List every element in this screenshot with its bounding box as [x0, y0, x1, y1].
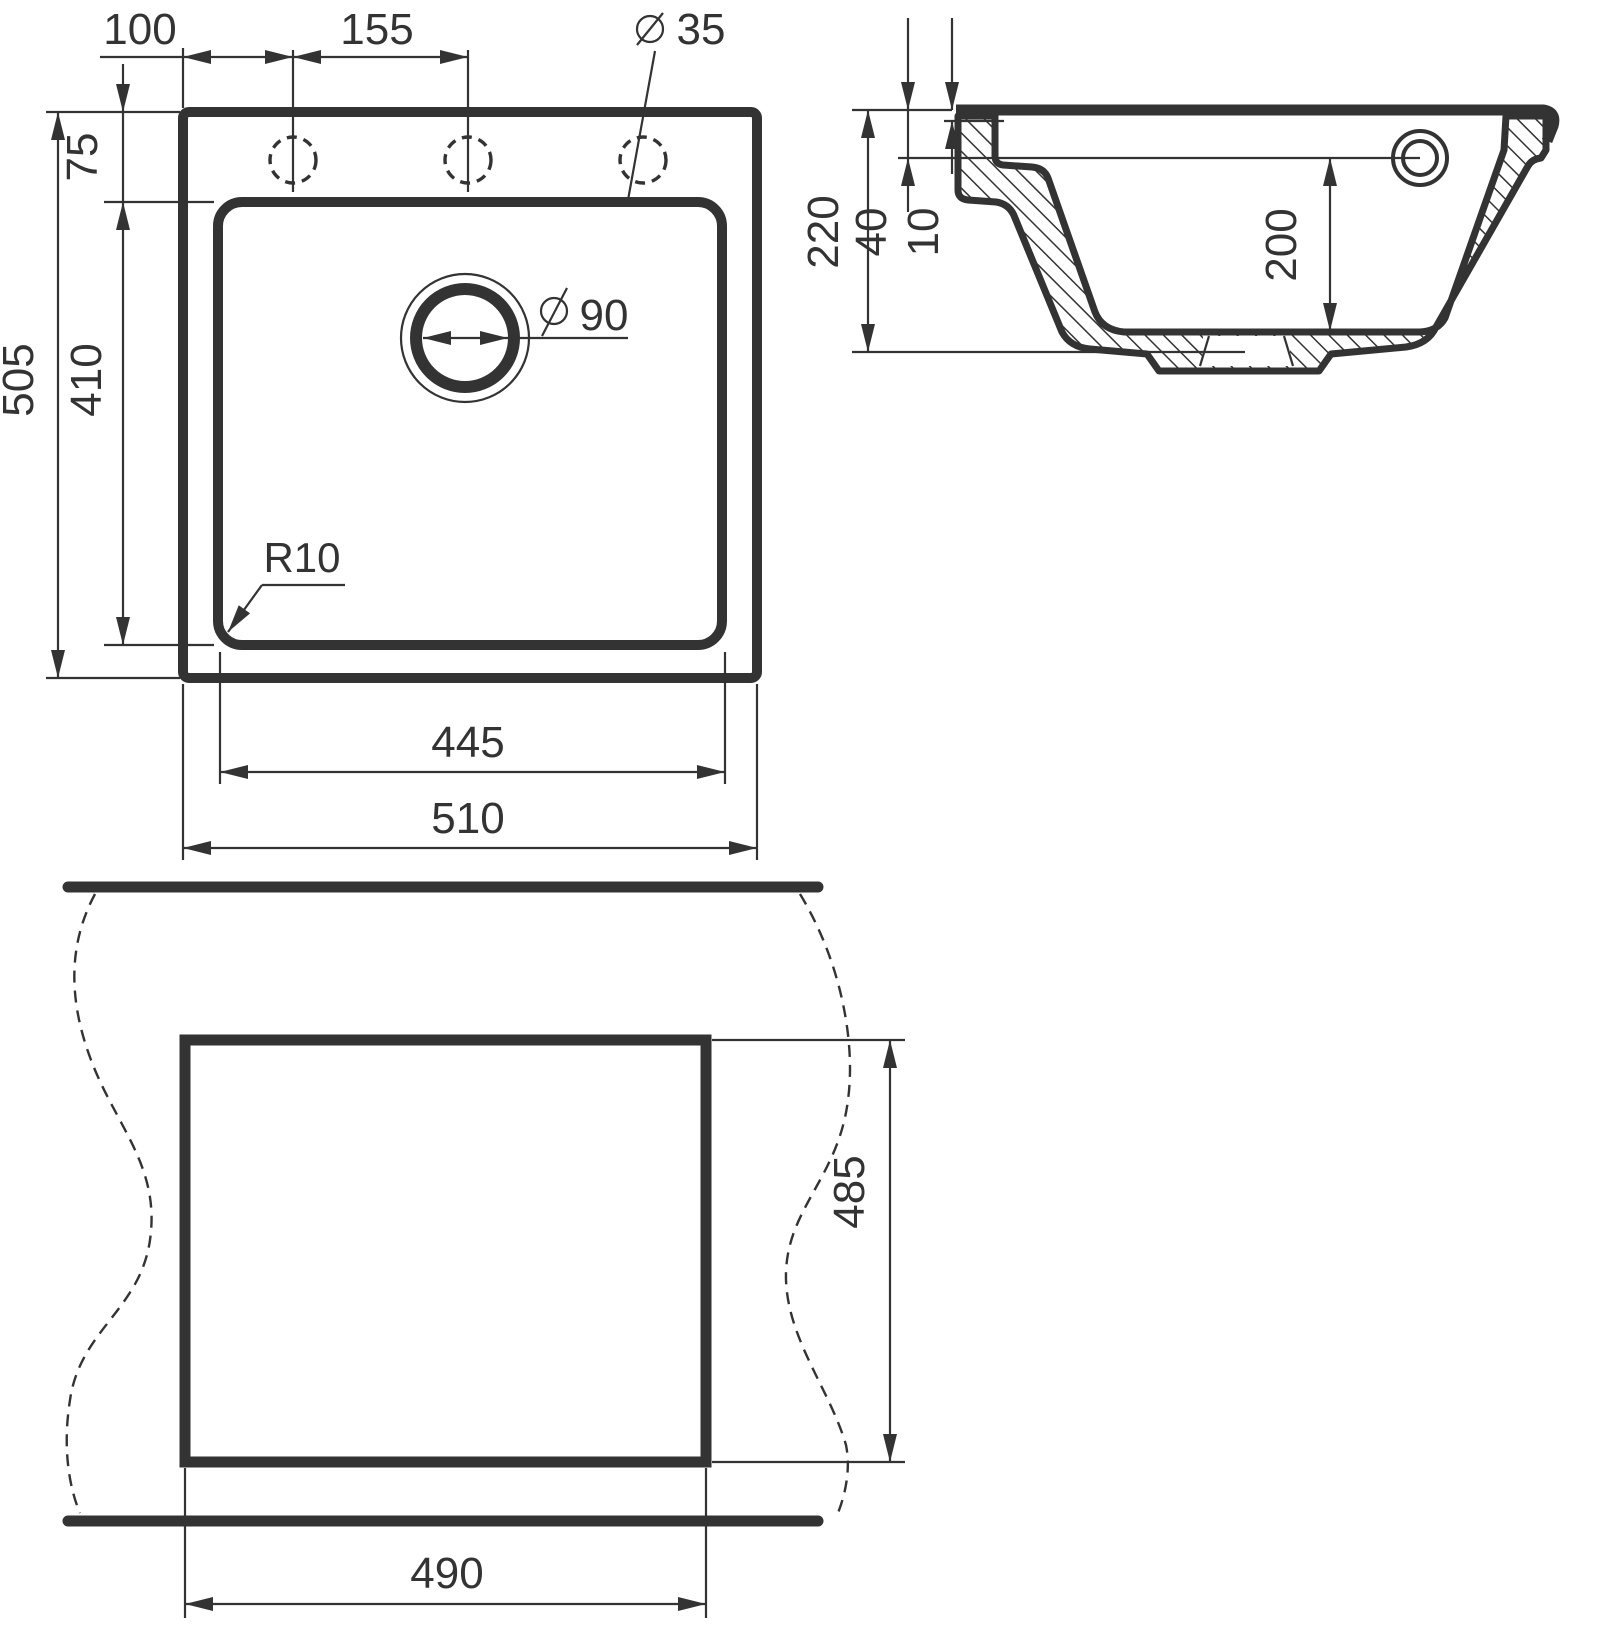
drawing-svg: 100 155 35 75 505 410 90 R10 [0, 0, 1600, 1628]
dim-label-hole-offset: 100 [103, 5, 176, 54]
leader-hole-diameter [628, 51, 655, 200]
diameter-icon [637, 13, 663, 45]
dim-label-ledge-depth: 40 [847, 208, 896, 257]
dim-label-rim-to-bowl: 75 [58, 133, 107, 182]
section-rim [956, 110, 1554, 141]
section-view: 220 40 10 200 [799, 18, 1554, 371]
dim-label-overall-depth: 505 [0, 343, 43, 416]
dim-label-drain-diameter: 90 [580, 291, 629, 340]
dim-label-cutout-width: 490 [410, 1549, 483, 1598]
dim-label-hole-diameter: 35 [677, 5, 726, 54]
dim-label-hole-spacing: 155 [340, 5, 413, 54]
dim-label-corner-radius: R10 [263, 534, 340, 581]
plan-view: 100 155 35 75 505 410 90 R10 [0, 5, 757, 860]
dim-label-cutout-height: 485 [825, 1155, 874, 1228]
dim-label-bowl-depth-section: 200 [1257, 208, 1306, 281]
cutout-view: 485 490 [67, 887, 905, 1618]
diameter-icon [541, 288, 567, 336]
dim-label-bowl-width: 445 [431, 718, 504, 767]
dim-label-total-height: 220 [799, 195, 848, 268]
sink-technical-drawing: 100 155 35 75 505 410 90 R10 [0, 0, 1600, 1628]
dim-label-rim-thickness: 10 [899, 208, 948, 257]
cutout-square [185, 1040, 706, 1462]
faucet-hole-3 [620, 137, 666, 183]
section-wall [958, 116, 1546, 371]
dim-label-overall-width: 510 [431, 794, 504, 843]
dim-label-bowl-depth: 410 [62, 343, 111, 416]
break-line-left [67, 894, 152, 1513]
leader-r10 [228, 585, 262, 632]
plan-outer-body [183, 112, 757, 678]
